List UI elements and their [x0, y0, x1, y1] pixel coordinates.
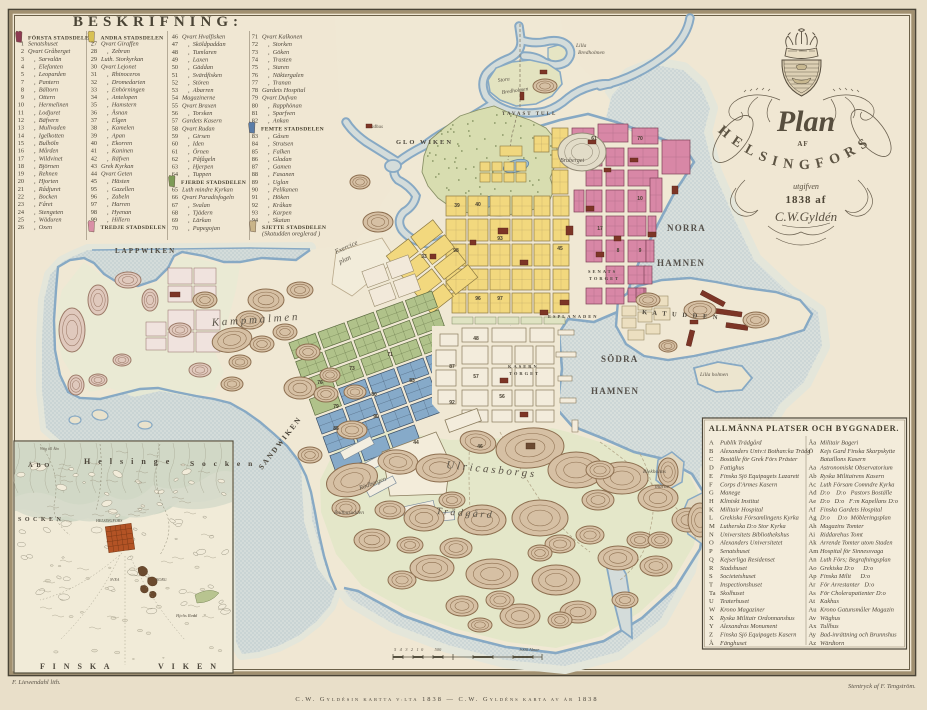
svg-text:, Wildvinet: , Wildvinet	[34, 155, 63, 162]
svg-text:C.W. GYLDÉSIN KARTTA V:LTA 183: C.W. GYLDÉSIN KARTTA V:LTA 1838 — C.W. G…	[295, 696, 598, 703]
svg-text:Riddarehus Tomt: Riddarehus Tomt	[819, 531, 863, 538]
svg-text:Ryska Militairens Kasern: Ryska Militairens Kasern	[819, 473, 884, 480]
svg-text:97: 97	[497, 296, 503, 302]
svg-text:, Kråkan: , Kråkan	[268, 202, 292, 209]
svg-text:Magazins Tomter: Magazins Tomter	[819, 523, 864, 530]
svg-text:85: 85	[252, 148, 258, 155]
svg-text:, Gåsen: , Gåsen	[268, 133, 289, 140]
svg-text:, Girsen: , Girsen	[188, 133, 210, 140]
svg-text:Å: Å	[709, 639, 714, 647]
svg-text:80: 80	[252, 102, 258, 109]
svg-text:Kliniskt Institut: Kliniskt Institut	[719, 498, 759, 505]
svg-text:11: 11	[18, 109, 24, 116]
svg-text:Ax: Ax	[809, 623, 818, 630]
svg-text:Ay: Ay	[809, 632, 817, 639]
svg-text:, Gamen: , Gamen	[268, 164, 291, 171]
svg-text:NORRA: NORRA	[667, 223, 706, 233]
svg-text:, Zebran: , Zebran	[107, 48, 130, 55]
svg-text:Z: Z	[709, 632, 713, 639]
svg-text:(Skatudden oreglerad ): (Skatudden oreglerad )	[262, 231, 320, 238]
svg-text:57: 57	[172, 118, 178, 125]
svg-text:Av: Av	[809, 615, 817, 622]
svg-text:, Bäfvern: , Bäfvern	[34, 117, 59, 124]
svg-text:29: 29	[91, 56, 97, 63]
svg-text:Ryska Militair Ordonnanshus: Ryska Militair Ordonnanshus	[719, 615, 795, 622]
svg-text:, Rhinoceros: , Rhinoceros	[107, 71, 141, 78]
svg-text:Publik Trädgård: Publik Trädgård	[719, 440, 762, 447]
svg-text:44: 44	[91, 171, 98, 178]
svg-text:TREDJE STADSDELEN: TREDJE STADSDELEN	[101, 225, 166, 231]
svg-text:Tullhus: Tullhus	[820, 623, 839, 630]
svg-text:, Gladan: , Gladan	[268, 156, 292, 163]
svg-text:SENATS: SENATS	[588, 269, 617, 274]
svg-text:, Staren: , Staren	[268, 64, 289, 71]
svg-text:96: 96	[475, 296, 481, 302]
svg-text:56: 56	[172, 110, 178, 117]
svg-text:Fattighus: Fattighus	[719, 465, 745, 472]
svg-text:, Hästen: , Hästen	[107, 178, 130, 185]
svg-text:10: 10	[18, 102, 24, 109]
svg-text:, Hermelinen: , Hermelinen	[34, 102, 68, 109]
svg-text:, Hjerpen: , Hjerpen	[188, 164, 213, 171]
svg-text:Blekholms: Blekholms	[643, 469, 666, 475]
svg-text:57: 57	[473, 374, 479, 380]
svg-text:22: 22	[18, 194, 24, 201]
svg-text:Skolhuset: Skolhuset	[720, 590, 744, 597]
svg-text:Ad: Ad	[809, 490, 818, 497]
svg-text:Finska Milit D:o: Finska Milit D:o	[819, 573, 870, 580]
svg-text:Qvart Giraffen: Qvart Giraffen	[101, 41, 139, 48]
svg-text:Lutherska D:o Stor Kyrka: Lutherska D:o Stor Kyrka	[719, 523, 786, 530]
svg-text:F I N S K A: F I N S K A	[40, 662, 113, 671]
svg-text:S: S	[709, 573, 713, 580]
svg-text:40: 40	[475, 202, 481, 208]
svg-text:, Sarvalän: , Sarvalän	[34, 56, 61, 63]
svg-text:utgifven: utgifven	[793, 182, 819, 191]
svg-text:83: 83	[252, 133, 258, 140]
svg-text:, Bocken: , Bocken	[34, 194, 57, 201]
svg-text:68: 68	[172, 209, 178, 216]
svg-text:81: 81	[252, 110, 258, 117]
svg-text:Ta: Ta	[709, 590, 716, 597]
svg-text:H: H	[709, 498, 714, 505]
svg-text:För Arrestanter D:o: För Arrestanter D:o	[819, 581, 874, 588]
svg-text:, Sköldpaddan: , Sköldpaddan	[188, 41, 226, 48]
svg-text:, Gäddan: , Gäddan	[188, 64, 213, 71]
svg-text:2: 2	[21, 48, 24, 55]
svg-text:, Mullvaden: , Mullvaden	[34, 125, 66, 132]
svg-text:36: 36	[91, 109, 97, 116]
svg-text:75: 75	[252, 64, 258, 71]
svg-text:53: 53	[172, 87, 178, 94]
svg-text:Qvart Paradisfogeln: Qvart Paradisfogeln	[182, 194, 234, 201]
svg-text:1: 1	[21, 41, 24, 48]
svg-text:Wäghus: Wäghus	[820, 615, 841, 622]
svg-text:, Fasanen: , Fasanen	[268, 171, 294, 178]
svg-text:71: 71	[252, 34, 258, 41]
svg-text:1000 Alnar: 1000 Alnar	[519, 647, 540, 652]
svg-text:Krono Gatunsmåler Magazin: Krono Gatunsmåler Magazin	[819, 607, 894, 614]
svg-text:69: 69	[172, 217, 178, 224]
svg-text:Q: Q	[709, 556, 714, 563]
svg-text:5: 5	[21, 71, 24, 78]
svg-text:W: W	[709, 607, 716, 614]
svg-text:, Enhörningen: , Enhörningen	[107, 86, 145, 93]
svg-text:SVEA: SVEA	[110, 577, 120, 582]
svg-text:Bruberget: Bruberget	[560, 158, 584, 164]
svg-text:48: 48	[172, 49, 178, 56]
svg-text:, Mården: , Mården	[34, 148, 58, 155]
svg-text:, Laxen: , Laxen	[188, 56, 208, 63]
svg-text:Aa: Aa	[809, 465, 817, 472]
svg-text:, Lodjuret: , Lodjuret	[34, 109, 60, 116]
svg-text:D:o D:o F:m Kapellans D:o: D:o D:o F:m Kapellans D:o	[819, 498, 898, 505]
svg-text:, Tranan: , Tranan	[268, 79, 291, 86]
svg-text:ESPLANADEN: ESPLANADEN	[548, 314, 599, 319]
svg-text:18: 18	[18, 163, 24, 170]
svg-text:, Elefanten: , Elefanten	[34, 63, 63, 70]
svg-text:76: 76	[252, 72, 258, 79]
svg-text:Luth Förs; Begrafningsplan: Luth Förs; Begrafningsplan	[819, 556, 891, 563]
svg-text:Finska Sjö Equipagets Lazarett: Finska Sjö Equipagets Lazarett	[719, 473, 799, 480]
svg-text:55: 55	[172, 102, 178, 109]
svg-text:, Bältorn: , Bältorn	[34, 86, 58, 93]
svg-text:, Hillern: , Hillern	[107, 216, 130, 223]
svg-text:87: 87	[252, 164, 258, 171]
svg-text:3: 3	[21, 56, 24, 63]
svg-text:B: B	[709, 448, 714, 455]
svg-text:HELSINGFORS: HELSINGFORS	[95, 518, 122, 523]
svg-text:, Apan: , Apan	[107, 132, 125, 139]
svg-text:47: 47	[172, 41, 178, 48]
svg-text:M: M	[709, 523, 715, 530]
svg-text:Kejs Gard Finska Skarpskytte: Kejs Gard Finska Skarpskytte	[819, 448, 895, 455]
svg-text:51: 51	[172, 72, 178, 79]
svg-text:Senatshuset: Senatshuset	[28, 41, 58, 48]
svg-text:C: C	[709, 456, 714, 463]
svg-text:Plan: Plan	[776, 105, 835, 138]
svg-text:, Lärkan: , Lärkan	[188, 217, 211, 224]
svg-text:50: 50	[172, 64, 178, 71]
svg-text:Qvart Braxen: Qvart Braxen	[182, 102, 216, 109]
svg-text:24: 24	[18, 209, 25, 216]
svg-text:, Hjorten: , Hjorten	[34, 178, 58, 185]
svg-text:BESKRIFNING:: BESKRIFNING:	[73, 14, 243, 30]
svg-text:Å B O: Å B O	[28, 461, 50, 469]
svg-text:S O C K E N: S O C K E N	[18, 517, 62, 523]
svg-text:Bad-inrättning och Brunnshus: Bad-inrättning och Brunnshus	[820, 632, 897, 639]
svg-text:Luth Försam Comndre Kyrka: Luth Försam Comndre Kyrka	[819, 481, 894, 488]
svg-text:Au: Au	[809, 607, 818, 614]
svg-text:, Hamstern: , Hamstern	[107, 102, 137, 109]
svg-text:61: 61	[172, 148, 178, 155]
svg-text:Lilla: Lilla	[575, 43, 587, 49]
svg-text:79: 79	[252, 95, 258, 102]
svg-text:Kakhus: Kakhus	[819, 598, 839, 605]
svg-text:Qvart Dufvan: Qvart Dufvan	[262, 95, 297, 102]
svg-text:, Påfågeln: , Påfågeln	[188, 156, 215, 163]
svg-text:56: 56	[499, 394, 505, 400]
svg-text:Wäg till Åbo: Wäg till Åbo	[40, 446, 59, 451]
svg-text:60: 60	[172, 141, 178, 148]
svg-text:, Igelkotten: , Igelkotten	[34, 132, 64, 139]
svg-text:54: 54	[172, 95, 179, 102]
svg-text:31: 31	[91, 71, 97, 78]
svg-text:90: 90	[373, 414, 379, 420]
svg-text:G: G	[709, 490, 714, 497]
svg-text:86: 86	[252, 156, 258, 163]
svg-text:71: 71	[387, 352, 393, 358]
svg-text:65: 65	[172, 187, 178, 194]
svg-text:45: 45	[91, 178, 97, 185]
svg-text:78: 78	[252, 87, 258, 94]
svg-text:Stentryck af F. Tengström.: Stentryck af F. Tengström.	[848, 683, 916, 690]
svg-text:44: 44	[413, 440, 419, 446]
svg-text:19: 19	[18, 171, 24, 178]
svg-text:87: 87	[449, 364, 455, 370]
svg-text:Grekiska D:o D:o: Grekiska D:o D:o	[820, 565, 873, 572]
svg-text:45: 45	[557, 246, 563, 252]
svg-text:, Stengeten: , Stengeten	[34, 209, 63, 216]
svg-text:H e l s i n g e: H e l s i n g e	[84, 457, 172, 466]
svg-text:, Trasten: , Trasten	[268, 56, 292, 63]
svg-text:GLO WIKEN: GLO WIKEN	[396, 139, 453, 146]
svg-text:46: 46	[477, 444, 483, 450]
svg-text:8: 8	[21, 86, 24, 93]
svg-text:, Svärdfisken: , Svärdfisken	[188, 72, 222, 79]
svg-text:39: 39	[91, 132, 97, 139]
svg-text:Militair Hospital: Militair Hospital	[719, 506, 763, 513]
svg-text:74: 74	[252, 56, 259, 63]
svg-text:Alexanders Universitetet: Alexanders Universitetet	[719, 540, 783, 547]
svg-text:Hospital för Sinnessvaga: Hospital för Sinnessvaga	[819, 548, 883, 555]
svg-text:As: As	[809, 590, 817, 597]
svg-text:32: 32	[91, 79, 97, 86]
svg-text:Astronomiskt Observatorium: Astronomiskt Observatorium	[819, 465, 893, 472]
svg-text:KASERN: KASERN	[508, 364, 539, 369]
svg-text:, Rådjuret: , Rådjuret	[34, 186, 61, 193]
svg-text:För Cholerapatienter D:o: För Cholerapatienter D:o	[819, 590, 886, 597]
svg-text:37: 37	[91, 117, 97, 124]
svg-text:Am: Am	[809, 548, 820, 555]
svg-text:Ab: Ab	[809, 473, 818, 480]
svg-text:10: 10	[637, 196, 643, 202]
svg-text:, Näktergalen: , Näktergalen	[268, 72, 304, 79]
svg-text:62: 62	[172, 156, 178, 163]
svg-text:T: T	[709, 581, 713, 588]
svg-text:91: 91	[252, 194, 258, 201]
svg-text:9: 9	[21, 94, 24, 101]
svg-text:Badhusudden: Badhusudden	[334, 510, 364, 516]
svg-text:41: 41	[91, 148, 97, 155]
svg-text:Manege: Manege	[719, 490, 740, 497]
svg-text:Teaterhuset: Teaterhuset	[720, 598, 749, 605]
svg-text:BORG: BORG	[156, 577, 167, 582]
svg-text:, Torsken: , Torsken	[188, 110, 212, 117]
svg-text:At: At	[809, 598, 816, 605]
svg-text:TAVAST TULL: TAVAST TULL	[502, 112, 557, 117]
svg-text:, Rapphönan: , Rapphönan	[268, 102, 302, 109]
svg-text:S o c k e n: S o c k e n	[190, 459, 255, 468]
svg-text:, Hyenan: , Hyenan	[107, 209, 131, 216]
svg-text:Ae: Ae	[809, 498, 817, 505]
svg-text:Grekiska Församlingens Kyrka: Grekiska Församlingens Kyrka	[720, 515, 799, 522]
svg-text:Ah: Ah	[809, 523, 818, 530]
svg-text:, Fåret: , Fåret	[34, 201, 53, 208]
svg-text:17: 17	[18, 155, 24, 162]
svg-text:, Gazellen: , Gazellen	[107, 186, 134, 193]
svg-text:Militair Bageri: Militair Bageri	[819, 440, 859, 447]
svg-text:23: 23	[18, 201, 24, 208]
svg-text:, Åsnan: , Åsnan	[107, 108, 127, 116]
svg-text:93: 93	[252, 209, 258, 216]
svg-text:63: 63	[172, 164, 178, 171]
svg-text:F. Liewendahl lith.: F. Liewendahl lith.	[11, 679, 61, 686]
svg-text:Bataillons Kasern: Bataillons Kasern	[820, 456, 866, 463]
svg-text:Finska Sjö Equipagets Kasern: Finska Sjö Equipagets Kasern	[719, 632, 796, 639]
svg-text:, Örnen: , Örnen	[188, 147, 209, 155]
svg-text:O: O	[709, 540, 714, 547]
svg-text:, Strutsen: , Strutsen	[268, 141, 293, 148]
svg-text:N: N	[709, 531, 714, 538]
svg-text:, Iden: , Iden	[188, 141, 204, 148]
svg-text:F: F	[709, 481, 713, 488]
svg-text:, Uglan: , Uglan	[268, 179, 288, 186]
svg-text:, Kamelen: , Kamelen	[107, 125, 134, 132]
svg-text:HAMNEN: HAMNEN	[657, 258, 705, 268]
svg-text:Qvart Lejonet: Qvart Lejonet	[101, 63, 136, 70]
svg-text:Qvart Geten: Qvart Geten	[101, 171, 132, 178]
svg-text:33: 33	[91, 86, 97, 93]
svg-text:98: 98	[91, 209, 97, 216]
svg-text:Qvart Kalkonen: Qvart Kalkonen	[262, 34, 302, 41]
svg-text:95: 95	[91, 186, 97, 193]
svg-text:15: 15	[18, 140, 24, 147]
svg-text:40: 40	[91, 140, 97, 147]
svg-text:Grek Kyrkan: Grek Kyrkan	[101, 163, 133, 170]
svg-text:, Sparfven: , Sparfven	[268, 110, 295, 117]
svg-text:Qvart Gråberget: Qvart Gråberget	[28, 48, 71, 55]
svg-text:Ap: Ap	[809, 573, 818, 580]
svg-text:16: 16	[18, 148, 24, 155]
svg-text:70: 70	[637, 136, 643, 142]
svg-text:92: 92	[252, 202, 258, 209]
svg-text:, Harren: , Harren	[107, 201, 130, 208]
svg-text:, Ankan: , Ankan	[268, 118, 289, 125]
svg-text:Wärdtorn: Wärdtorn	[820, 640, 844, 647]
svg-text:Ao: Ao	[809, 565, 818, 572]
svg-text:, Ekorren: , Ekorren	[107, 140, 132, 147]
svg-text:, Karpen: , Karpen	[268, 209, 292, 216]
svg-text:, Rehnen: , Rehnen	[34, 171, 58, 178]
svg-text:43: 43	[91, 163, 97, 170]
svg-text:D:o D:o Möbleringsplan: D:o D:o Möbleringsplan	[819, 515, 891, 522]
svg-text:FJERDE STADSDELEN: FJERDE STADSDELEN	[181, 180, 246, 186]
svg-text:25: 25	[18, 216, 24, 223]
svg-text:30: 30	[91, 63, 97, 70]
svg-text:48: 48	[473, 336, 479, 342]
svg-text:L: L	[709, 515, 713, 522]
svg-text:Fänghuset: Fänghuset	[719, 640, 747, 647]
svg-text:Qvart Rudan: Qvart Rudan	[182, 125, 215, 132]
svg-text:, Skatan: , Skatan	[268, 217, 290, 224]
svg-text:A: A	[709, 440, 714, 447]
svg-text:X: X	[709, 615, 714, 622]
svg-text:83: 83	[409, 378, 415, 384]
svg-text:, Abarren: , Abarren	[188, 87, 213, 94]
svg-text:96: 96	[91, 194, 97, 201]
svg-text:HAMNEN: HAMNEN	[591, 386, 639, 396]
svg-text:34: 34	[91, 94, 98, 101]
svg-text:Luth. Storkyrkan: Luth. Storkyrkan	[100, 56, 143, 63]
svg-text:49: 49	[172, 56, 178, 63]
svg-text:Luth mindre Kyrkan: Luth mindre Kyrkan	[181, 187, 233, 194]
svg-text:Lilla holmen: Lilla holmen	[699, 372, 728, 378]
svg-text:70: 70	[172, 225, 178, 232]
svg-text:17: 17	[597, 226, 603, 232]
svg-text:42: 42	[91, 155, 97, 162]
svg-text:D:o D:o Pastors Boställe: D:o D:o Pastors Boställe	[819, 490, 892, 497]
svg-text:, Höken: , Höken	[268, 194, 289, 201]
svg-text:97: 97	[91, 201, 97, 208]
svg-text:88: 88	[252, 171, 258, 178]
svg-text:AF: AF	[797, 140, 808, 148]
svg-text:Stadshuset: Stadshuset	[720, 565, 747, 572]
svg-text:V I K E N: V I K E N	[158, 662, 219, 671]
svg-text:E: E	[709, 473, 713, 480]
svg-text:, Ottern: , Ottern	[34, 94, 55, 101]
svg-text:, Tjädern: , Tjädern	[188, 209, 213, 216]
svg-text:Gardets Hospital: Gardets Hospital	[262, 87, 306, 94]
svg-text:LAPPWIKEN: LAPPWIKEN	[115, 247, 176, 255]
svg-text:26: 26	[18, 224, 24, 231]
svg-text:84: 84	[252, 141, 259, 148]
svg-text:Ai: Ai	[809, 531, 816, 538]
svg-text:D: D	[709, 465, 714, 472]
svg-text:90: 90	[252, 187, 258, 194]
svg-text:, Falken: , Falken	[268, 148, 290, 155]
svg-text:Alexandras Monument: Alexandras Monument	[719, 623, 777, 630]
svg-text:Y: Y	[709, 623, 714, 630]
svg-text:TORGET: TORGET	[589, 276, 620, 281]
svg-text:, Björnen: , Björnen	[34, 163, 59, 170]
svg-text:, Pantern: , Pantern	[34, 79, 59, 86]
svg-text:C.W.Gyldén: C.W.Gyldén	[775, 209, 837, 224]
svg-text:58: 58	[172, 125, 178, 132]
svg-text:Magazinerne: Magazinerne	[181, 95, 215, 102]
svg-text:, Storken: , Storken	[268, 41, 292, 48]
svg-text:Ag: Ag	[809, 515, 818, 522]
svg-text:K: K	[709, 506, 714, 513]
svg-text:92: 92	[449, 400, 455, 406]
svg-text:, Räfven: , Räfven	[107, 155, 129, 162]
svg-text:Bredholmen: Bredholmen	[578, 50, 605, 56]
svg-text:1838 af: 1838 af	[786, 194, 827, 206]
svg-text:, Svalan: , Svalan	[188, 202, 210, 209]
svg-text:28: 28	[91, 48, 97, 55]
svg-text:marne: marne	[655, 484, 670, 490]
svg-text:Boställe för Grek Förs Präster: Boställe för Grek Förs Präster	[720, 456, 798, 463]
svg-text:Senatshuset: Senatshuset	[720, 548, 750, 555]
svg-text:TORGET: TORGET	[509, 371, 540, 376]
svg-text:59: 59	[172, 133, 178, 140]
svg-text:33: 33	[421, 254, 427, 260]
svg-text:, Göken: , Göken	[268, 49, 289, 56]
svg-text:21: 21	[18, 186, 24, 193]
svg-text:8: 8	[617, 248, 620, 254]
svg-text:, Bulhöln: , Bulhöln	[34, 140, 59, 147]
svg-text:Af: Af	[809, 506, 817, 513]
